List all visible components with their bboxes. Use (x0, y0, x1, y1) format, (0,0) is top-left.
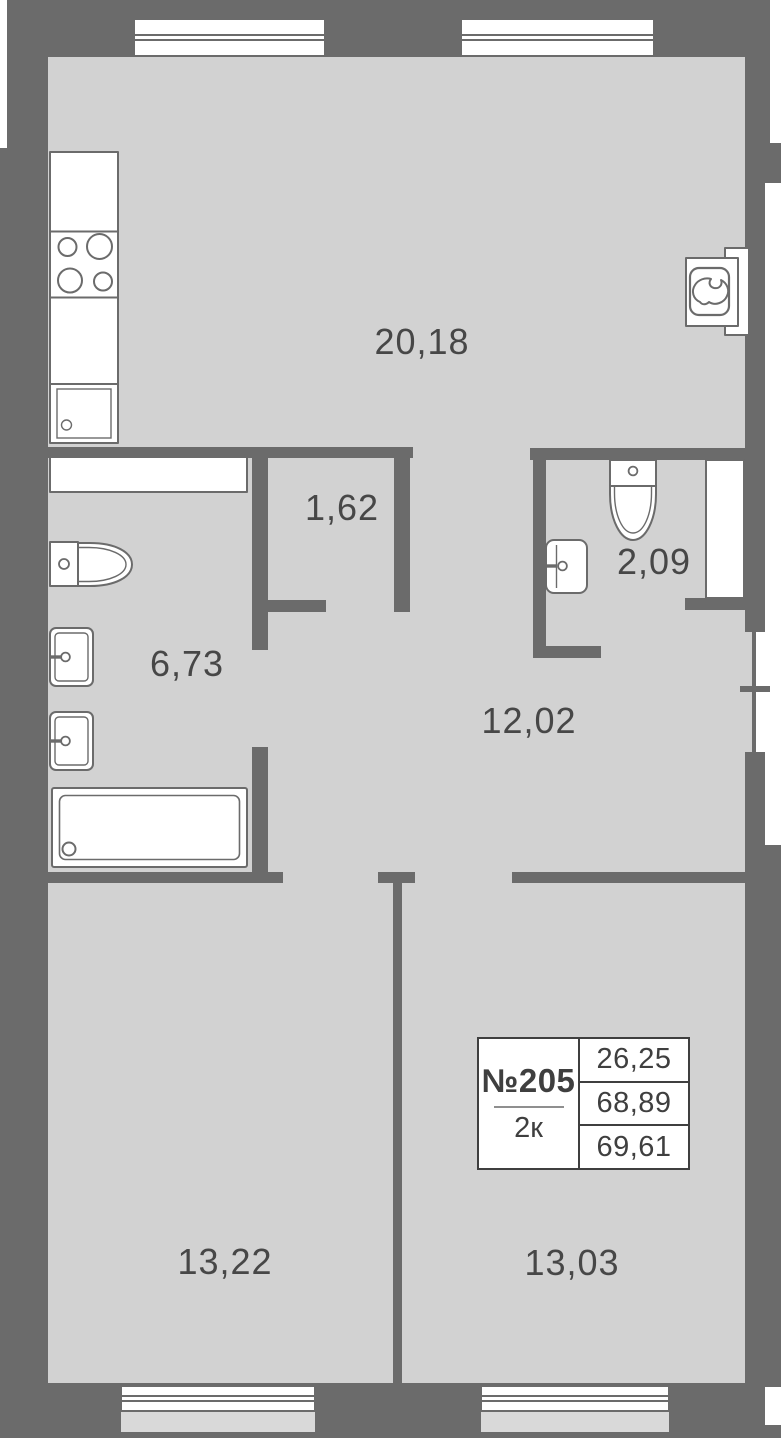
vent-shaft (706, 460, 744, 598)
bathroom-sink-2 (50, 712, 93, 770)
window-top-right (461, 19, 654, 56)
room-area-label-closet: 1,62 (305, 487, 379, 529)
unit-area-value-3: 69,61 (580, 1124, 688, 1168)
unit-area-value-1: 26,25 (580, 1039, 688, 1081)
unit-info-box: №205 2к 26,25 68,89 69,61 (477, 1037, 690, 1170)
bathtub (52, 788, 247, 867)
unit-info-left-cell: №205 2к (479, 1039, 580, 1168)
door-tick-mark (740, 686, 770, 692)
room-area-label-bedroom-right: 13,03 (524, 1242, 619, 1284)
entrance-door (740, 632, 781, 752)
window-top-left (134, 19, 325, 56)
unit-info-areas-column: 26,25 68,89 69,61 (580, 1039, 688, 1168)
room-area-label-wc: 2,09 (617, 541, 691, 583)
floor-plan: 20,18 1,62 2,09 6,73 12,02 13,22 13,03 №… (0, 0, 781, 1438)
unit-rooms-type: 2к (514, 1112, 543, 1145)
wc-toilet (610, 460, 656, 540)
bathroom-shelf (50, 457, 247, 492)
bathroom-toilet (50, 542, 132, 586)
room-area-label-bathroom: 6,73 (150, 643, 224, 685)
unit-divider-line (494, 1106, 564, 1108)
unit-number: №205 (482, 1062, 576, 1100)
window-bottom-right (481, 1386, 669, 1432)
floor-plan-drawing (0, 0, 781, 1438)
room-area-label-kitchen-living: 20,18 (374, 321, 469, 363)
kitchen-counter (50, 152, 118, 443)
wc-sink (546, 540, 587, 593)
bathroom-sink-1 (50, 628, 93, 686)
window-bottom-left (121, 1386, 315, 1432)
room-area-label-bedroom-left: 13,22 (177, 1241, 272, 1283)
gas-boiler (686, 248, 749, 335)
unit-area-value-2: 68,89 (580, 1081, 688, 1125)
room-area-label-hallway: 12,02 (481, 700, 576, 742)
